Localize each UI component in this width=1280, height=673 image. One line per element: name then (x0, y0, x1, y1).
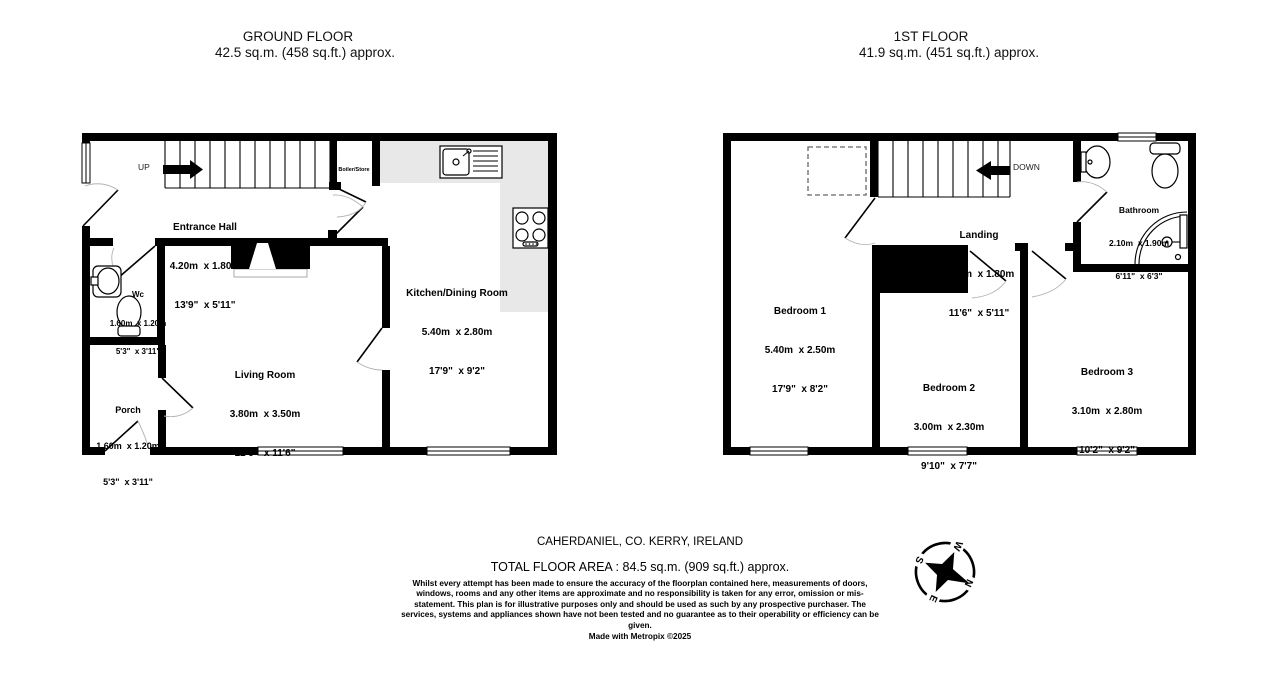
hob-icon (513, 208, 548, 248)
first-floor-subtitle: 41.9 sq.m. (451 sq.ft.) approx. (859, 45, 1039, 60)
compass-rose: N E S W (903, 530, 987, 614)
room-label-living-room: Living Room 3.80m x 3.50m 12'6" x 11'6" (230, 343, 301, 486)
disclaimer-text: Whilst every attempt has been made to en… (400, 579, 880, 631)
room-label-boiler-store: Boiler/Store (338, 155, 369, 185)
stairs-up (165, 141, 330, 188)
fireplace-icon (231, 243, 310, 277)
stairs-up-label: UP (138, 162, 150, 172)
up-arrow-icon (163, 160, 203, 179)
down-arrow-icon (976, 161, 1010, 180)
ground-floor-subtitle: 42.5 sq.m. (458 sq.ft.) approx. (215, 45, 395, 60)
room-label-landing: Landing 3.50m x 1.80m 11'6" x 5'11" (944, 203, 1015, 346)
room-label-entrance-hall: Entrance Hall 4.20m x 1.80m 13'9" x 5'11… (170, 195, 241, 338)
room-label-wc: Wc 1.60m x 1.20m 5'3" x 3'11" (110, 271, 166, 376)
room-label-kitchen-dining: Kitchen/Dining Room 5.40m x 2.80m 17'9" … (406, 261, 508, 404)
kitchen-sink-icon (440, 146, 502, 178)
total-floor-area: TOTAL FLOOR AREA : 84.5 sq.m. (909 sq.ft… (491, 560, 790, 574)
first-floor-title: 1ST FLOOR (894, 29, 969, 44)
room-label-bedroom-3: Bedroom 3 3.10m x 2.80m 10'2" x 9'2" (1072, 340, 1143, 483)
room-label-bedroom-2: Bedroom 2 3.00m x 2.30m 9'10" x 7'7" (914, 356, 985, 499)
room-label-bathroom: Bathroom 2.10m x 1.90m 6'11" x 6'3" (1109, 183, 1169, 304)
stairs-down-label: DOWN (1013, 162, 1040, 172)
room-label-bedroom-1: Bedroom 1 5.40m x 2.50m 17'9" x 8'2" (765, 279, 836, 422)
room-label-porch: Porch 1.60m x 1.20m 5'3" x 3'11" (96, 380, 160, 512)
wardrobe-dashed-outline (808, 147, 866, 195)
property-address: CAHERDANIEL, CO. KERRY, IRELAND (537, 536, 743, 548)
ground-floor-title: GROUND FLOOR (243, 29, 353, 44)
bath-toilet-icon (1150, 143, 1180, 188)
credit-text: Made with Metropix ©2025 (589, 632, 692, 641)
floorplan-page: GROUND FLOOR 42.5 sq.m. (458 sq.ft.) app… (0, 0, 1280, 673)
bath-sink-icon (1081, 146, 1110, 178)
